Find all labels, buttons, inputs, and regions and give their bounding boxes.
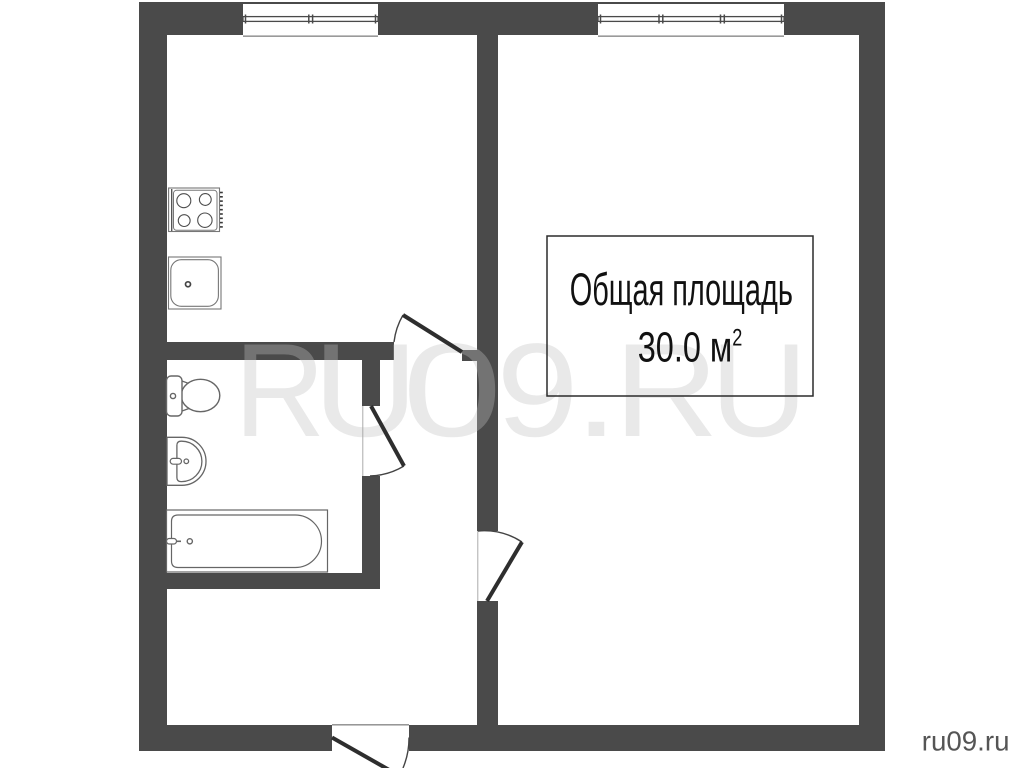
svg-text:ru09.ru: ru09.ru: [922, 726, 1010, 757]
svg-text:R: R: [234, 317, 325, 465]
svg-text:9: 9: [496, 316, 578, 464]
svg-text:Общая площадь: Общая площадь: [570, 266, 793, 316]
svg-text:0: 0: [402, 316, 502, 465]
svg-text:30.0 м2: 30.0 м2: [638, 324, 743, 372]
svg-text:.: .: [574, 316, 619, 465]
